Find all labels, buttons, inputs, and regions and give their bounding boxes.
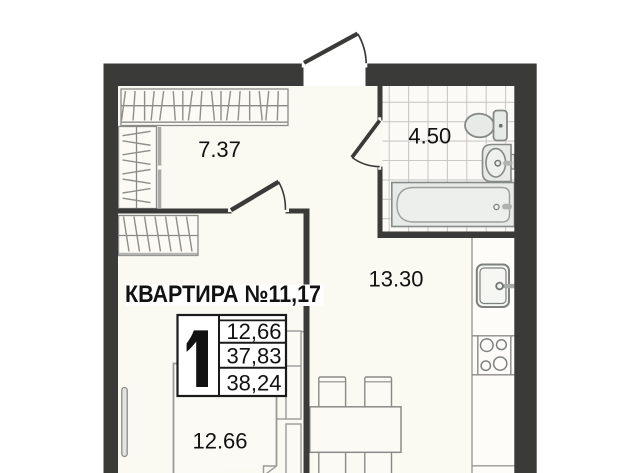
svg-text:13.30: 13.30 (368, 267, 423, 292)
svg-text:12,66: 12,66 (226, 319, 281, 344)
svg-text:12.66: 12.66 (192, 429, 247, 454)
svg-text:7.37: 7.37 (198, 137, 241, 162)
svg-text:КВАРТИРА №11,17: КВАРТИРА №11,17 (125, 281, 321, 308)
svg-text:37,83: 37,83 (226, 344, 281, 369)
svg-text:38,24: 38,24 (226, 370, 281, 395)
svg-text:4.50: 4.50 (408, 124, 451, 149)
